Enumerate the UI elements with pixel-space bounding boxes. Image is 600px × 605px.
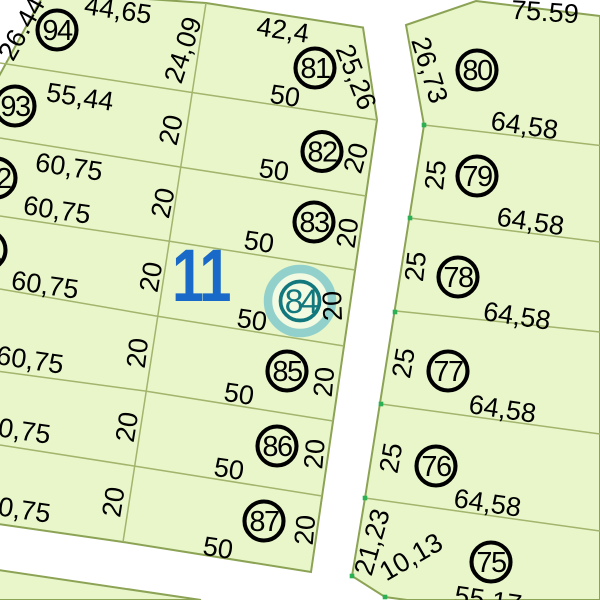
svg-text:50: 50	[268, 79, 302, 113]
svg-text:50: 50	[212, 452, 246, 486]
svg-text:25: 25	[386, 346, 421, 381]
svg-text:25: 25	[419, 158, 452, 191]
svg-text:50: 50	[222, 377, 256, 411]
svg-text:81: 81	[300, 53, 330, 85]
svg-text:20: 20	[298, 438, 331, 471]
svg-text:92: 92	[0, 163, 11, 195]
svg-text:84: 84	[285, 283, 318, 321]
svg-text:20: 20	[308, 366, 341, 399]
svg-text:83: 83	[299, 207, 329, 239]
svg-text:77: 77	[433, 356, 463, 388]
svg-text:25: 25	[399, 250, 432, 283]
svg-text:75: 75	[476, 547, 506, 579]
svg-text:20: 20	[289, 514, 322, 547]
svg-text:20: 20	[317, 290, 348, 321]
svg-text:20: 20	[121, 336, 154, 369]
svg-text:75.59: 75.59	[510, 0, 580, 29]
svg-text:78: 78	[443, 262, 473, 294]
svg-text:20: 20	[134, 260, 169, 295]
svg-text:11: 11	[172, 235, 231, 318]
svg-text:87: 87	[249, 506, 279, 538]
svg-text:76: 76	[421, 451, 451, 483]
svg-text:50: 50	[235, 303, 269, 337]
svg-text:20: 20	[110, 410, 144, 444]
svg-text:20: 20	[96, 485, 130, 519]
svg-text:94: 94	[42, 15, 73, 47]
svg-text:85: 85	[272, 356, 302, 388]
svg-text:50: 50	[257, 153, 291, 187]
svg-text:79: 79	[462, 161, 492, 193]
svg-text:86: 86	[262, 431, 292, 463]
svg-text:80: 80	[462, 55, 492, 87]
svg-text:82: 82	[307, 137, 337, 169]
svg-text:50: 50	[242, 225, 276, 259]
svg-text:20: 20	[331, 216, 365, 250]
svg-text:50: 50	[201, 531, 235, 565]
svg-text:25: 25	[374, 441, 409, 476]
svg-text:93: 93	[0, 91, 30, 123]
svg-text:20: 20	[145, 185, 181, 221]
